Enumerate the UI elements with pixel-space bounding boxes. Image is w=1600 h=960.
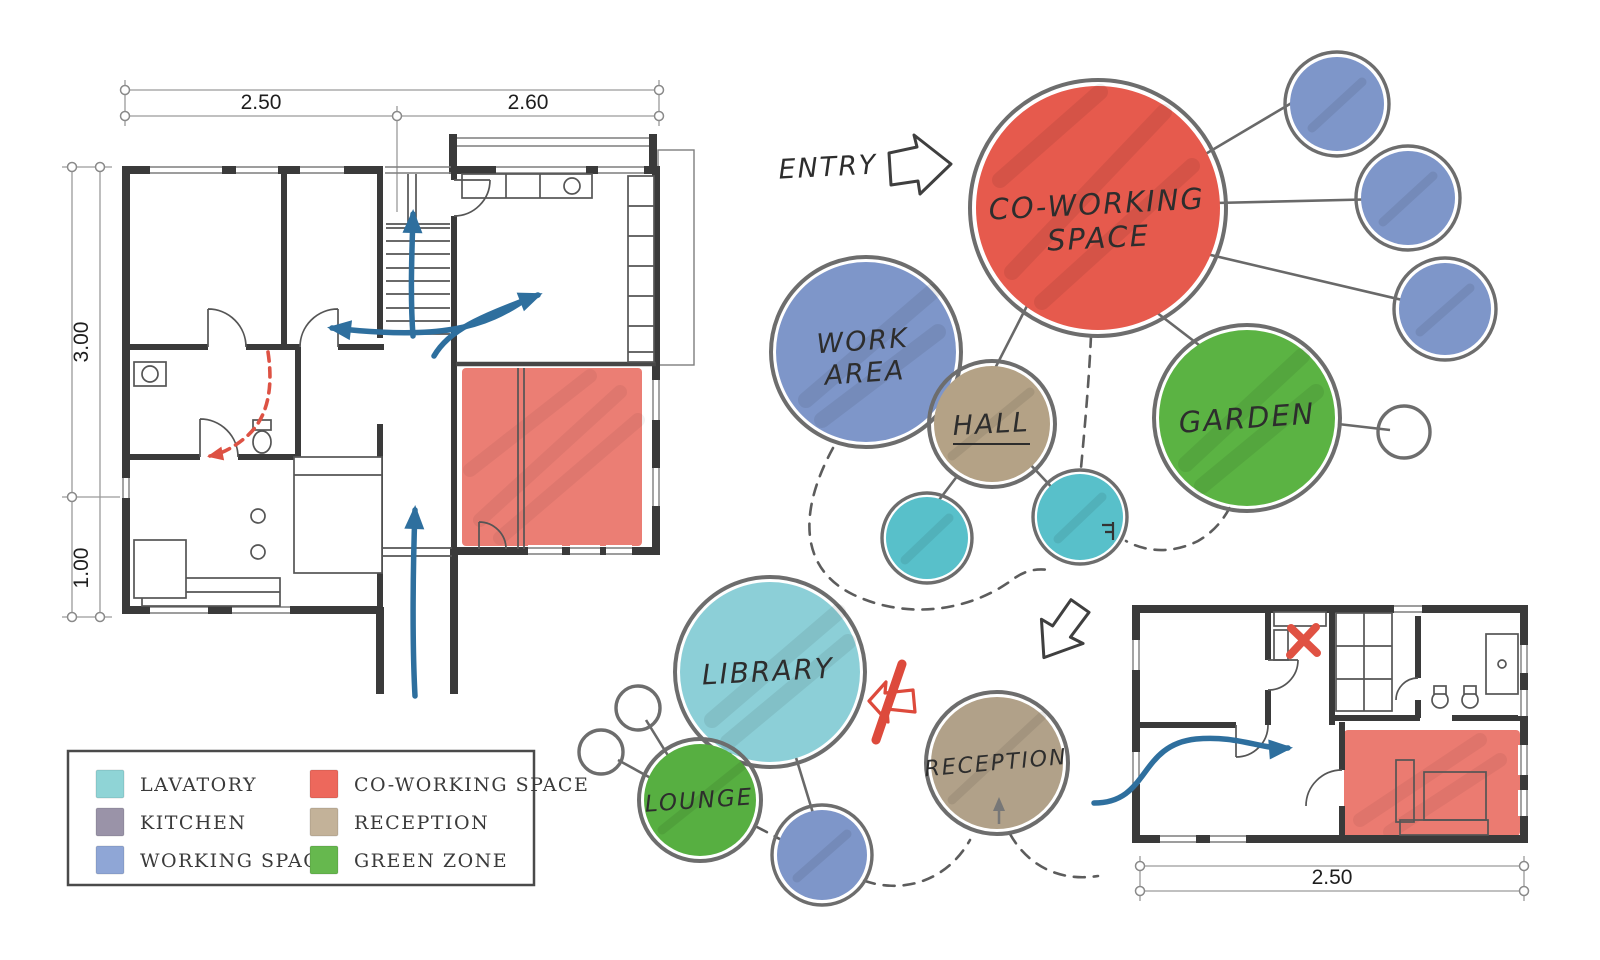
legend-swatch-green-zone [310, 846, 338, 874]
bubble-hall: HALL [929, 361, 1055, 487]
dim-left-lower: 1.00 [70, 548, 93, 589]
bubble-label-line2: SPACE [1046, 218, 1151, 257]
main-floor-plan: 2.50 2.60 3.00 1.00 [62, 80, 694, 696]
bubble-garden: GARDEN [1154, 325, 1340, 511]
legend-label-co-working-space: CO-WORKING SPACE [354, 774, 589, 796]
tree-icon-1 [1378, 406, 1430, 458]
legend-label-lavatory: LAVATORY [140, 774, 257, 796]
legend-swatch-co-working-space [310, 770, 338, 798]
flow-arrow-left [332, 296, 530, 333]
legend-label-working-space: WORKING SPACE [140, 850, 335, 872]
main-plan-stairs [386, 174, 450, 334]
small-plan-dimension: 2.50 [1136, 856, 1529, 901]
no-entry-icon [869, 664, 915, 740]
bubble-co-working-space: CO-WORKING SPACE [970, 80, 1226, 336]
dashed-link-reception-plan [1010, 834, 1098, 877]
legend-label-green-zone: GREEN ZONE [354, 850, 508, 872]
bubble-working-satellite-2 [1356, 146, 1460, 250]
bubble-label: LIBRARY [701, 652, 835, 692]
legend-swatch-working-space [96, 846, 124, 874]
bubble-working-satellite-3 [1394, 258, 1496, 360]
flow-arrow-entry [413, 510, 415, 696]
dim-left-upper: 3.00 [70, 322, 93, 363]
bubble-label: HALL [952, 407, 1030, 442]
dim-top-right: 2.60 [508, 91, 549, 114]
bubble-reception: RECEPTION [924, 692, 1069, 834]
bubble-lounge: LOUNGE [639, 739, 761, 861]
bubble-lavatory-1 [882, 493, 972, 583]
legend-item-reception: RECEPTION [310, 808, 489, 836]
bubble-lavatory-2 [1033, 470, 1127, 564]
bubble-label-line2: AREA [822, 355, 907, 392]
main-plan-left-dimension: 3.00 1.00 [62, 163, 126, 622]
entry-callout: ENTRY [778, 135, 951, 194]
dashed-link-cws-lavatory [1081, 336, 1091, 468]
bubble-work-area: WORK AREA [771, 257, 961, 447]
legend-label-kitchen: KITCHEN [140, 812, 246, 834]
main-plan-co-working-zone [462, 368, 642, 546]
tree-icon-2 [616, 686, 660, 730]
concept-sketch: 2.50 2.60 3.00 1.00 [0, 0, 1600, 960]
legend: LAVATORY KITCHEN WORKING SPACE CO-WORKIN… [68, 751, 589, 885]
legend-swatch-lavatory [96, 770, 124, 798]
legend-swatch-reception [310, 808, 338, 836]
legend-label-reception: RECEPTION [354, 812, 489, 834]
red-dashed-arrow [210, 352, 270, 456]
small-floor-plan: 2.50 [1094, 603, 1531, 901]
bubble-working-satellite-1 [1285, 52, 1389, 156]
bubble-label-line1: WORK [816, 323, 911, 360]
legend-item-lavatory: LAVATORY [96, 770, 257, 798]
down-arrow-icon [1024, 592, 1099, 671]
legend-item-kitchen: KITCHEN [96, 808, 246, 836]
dim-top-left: 2.50 [241, 91, 282, 114]
entry-label: ENTRY [778, 149, 879, 185]
legend-swatch-kitchen [96, 808, 124, 836]
flow-arrow-stairs [411, 214, 413, 336]
bubble-working-satellite-4 [772, 805, 872, 905]
entry-arrow-icon [889, 135, 951, 194]
concept-sketch-canvas: 2.50 2.60 3.00 1.00 [0, 0, 1600, 960]
x-mark-icon [1290, 627, 1317, 655]
dim-small-bottom: 2.50 [1312, 866, 1353, 889]
tree-icon-3 [579, 730, 623, 774]
